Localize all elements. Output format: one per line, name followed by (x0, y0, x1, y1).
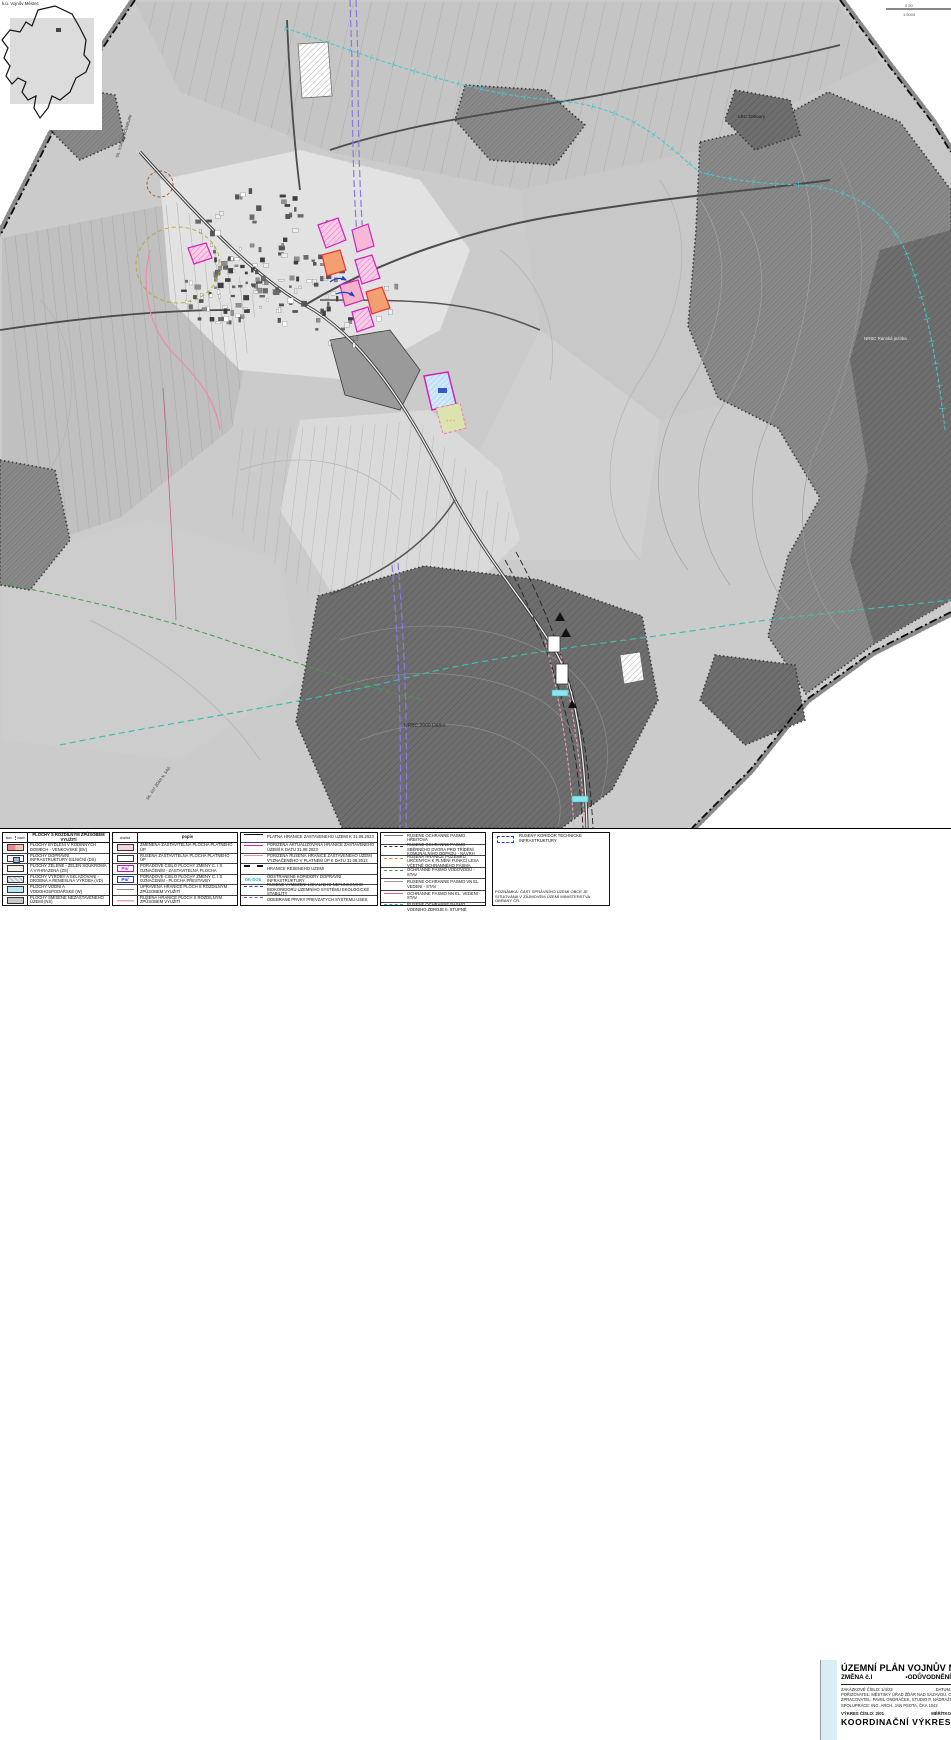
title-block-divider (841, 1684, 951, 1685)
legend-item: HRANICE ŘEŠENÉHO ÚZEMÍ (241, 864, 377, 874)
legend-item: RUŠENÉ OCHRANNÉ PÁSMO VN EL. VEDENÍ - ST… (381, 879, 485, 891)
legend-item-label: PLOCHY BYDLENÍ V RODINNÝCH DOMECH - VENK… (28, 843, 109, 852)
legend-item: PLOCHY VODNÍ A VODOHOSPODÁŘSKÉ (W) (3, 885, 109, 896)
legend-swatch: Pn/ (117, 865, 134, 872)
legend-item: OCHRANNÉ PÁSMO NN EL. VEDENÍ - STAV (381, 891, 485, 903)
inset-boundary-map (0, 0, 102, 130)
legend-subheaders: značka (113, 833, 138, 842)
legend-land-use-items: PLOCHY BYDLENÍ V RODINNÝCH DOMECH - VENK… (3, 843, 109, 905)
legend-item-label: PLOCHY VODNÍ A VODOHOSPODÁŘSKÉ (W) (28, 885, 109, 894)
legend-item-label: PLOCHY VÝROBY A SKLADOVÁNÍ - DROBNÁ A ŘE… (28, 875, 109, 884)
legend-strip: stav návrh PLOCHY S ROZDÍLNÝM ZPŮSOBEM V… (0, 830, 951, 910)
legend-swatch (7, 876, 24, 883)
legend-line-swatch (244, 865, 263, 872)
legend-item-label: RUŠENÁ HRANICE POZEMKŮ URČENÝCH K PLNĚNÍ… (405, 855, 485, 869)
legend-swatch (7, 855, 24, 862)
legend-swatch (497, 836, 514, 843)
legend-line-swatch (384, 846, 403, 853)
legend-item: Pn/ POŘADOVÉ ČÍSLO PLOCHY ZMĚNY Č. I S O… (113, 864, 237, 875)
legend-item: RUŠENÁ HRANICE PLOCH S ROZDÍLNÝM ZPŮSOBE… (113, 896, 237, 906)
legend-line-swatch (384, 835, 403, 842)
legend-table-changes: značka popis ZMĚNĚNÁ ZASTAVITELNÁ PLOCHA… (112, 832, 238, 906)
legend-item-label: ZMĚNĚNÁ ZASTAVITELNÁ PLOCHA PLATNÉHO ÚP (138, 843, 237, 852)
legend-table-land-use: stav návrh PLOCHY S ROZDÍLNÝM ZPŮSOBEM V… (2, 832, 110, 906)
legend-item: POŘÍZENÁ RUŠENÁ HRANICE ZASTAVĚNÉHO ÚZEM… (241, 854, 377, 864)
legend-item-label: RUŠENÁ ZASTAVITELNÁ PLOCHA PLATNÉHO ÚP (138, 854, 237, 863)
legend-item: OCHRANNÉ PÁSMO VODOVODU - STAV (381, 868, 485, 880)
legend-item: Pn/ POŘADOVÉ ČÍSLO PLOCHY ZMĚNY Č. I S O… (113, 875, 237, 886)
label-lbc-zahoury: LBC Zahoury (738, 114, 766, 119)
drawing-name: KOORDINAČNÍ VÝKRES ▪ (841, 1717, 951, 1727)
plan-change-label: ZMĚNA č.I (841, 1674, 872, 1681)
title-block: ÚZEMNÍ PLÁN VOJNŮV MĚSTEC ZMĚNA č.I ▪ODŮ… (820, 1660, 951, 1740)
legend-item-label: POŘÍZENÁ AKTUALIZOVANÁ HRANICE ZASTAVĚNÉ… (265, 843, 377, 852)
title-block-stripe (821, 1660, 837, 1740)
legend-boundaries-items: PLATNÁ HRANICE ZASTAVĚNÉHO ÚZEMÍ K 31.08… (241, 833, 377, 905)
legend-item-label: PLOCHY DOPRAVNÍ INFRASTRUKTURY SILNIČNÍ … (28, 854, 109, 863)
legend-swatch (7, 886, 24, 893)
legend-line-swatch (384, 881, 403, 888)
legend-line-swatch (384, 858, 403, 865)
legend-item-label: RUŠENÉ OCHRANNÉ PÁSMO VODNÍHO ZDROJE II.… (405, 903, 485, 912)
legend-swatch (7, 897, 24, 904)
legend-changes-header: popis (138, 833, 237, 842)
legend-item-label: POŘADOVÉ ČÍSLO PLOCHY ZMĚNY Č. I S OZNAČ… (138, 875, 237, 884)
legend-item-label: UPRAVENÁ HRANICE PLOCH S ROZDÍLNÝM ZPŮSO… (138, 885, 237, 894)
legend-changes-items: ZMĚNĚNÁ ZASTAVITELNÁ PLOCHA PLATNÉHO ÚP … (113, 843, 237, 905)
legend-note: POZNÁMKA: ČÁST SPRÁVNÍHO ÚZEMÍ OBCE JE S… (495, 890, 607, 904)
legend-line-swatch: DK-DO5 (244, 876, 263, 883)
legend-item-label: PLOCHY SMÍŠENÉ NEZASTAVĚNÉHO ÚZEMÍ (NS) (28, 896, 109, 905)
scale-label: MĚŘÍTKO (931, 1711, 951, 1716)
legend-line-swatch (384, 904, 403, 911)
legend-item: PLOCHY ZELENĚ - ZELEŇ SOUKROMÁ A VYHRAZE… (3, 864, 109, 875)
legend-swatch (117, 886, 134, 893)
legend-item-label: POŘÍZENÁ RUŠENÁ HRANICE ZASTAVĚNÉHO ÚZEM… (265, 854, 377, 863)
legend-line-swatch (244, 897, 263, 904)
legend-item-label: RUŠENÉ OCHRANNÉ PÁSMO VN EL. VEDENÍ - ST… (405, 880, 485, 889)
legend-swatch (7, 865, 24, 872)
legend-item: RUŠENÉ VYMEZENÍ LOKÁLNÍHO NEFUNKČNÍHO BI… (241, 885, 377, 895)
legend-item: PLOCHY BYDLENÍ V RODINNÝCH DOMECH - VENK… (3, 843, 109, 854)
legend-item-label: ODEBRANÉ PRVKY PŘEVZATÝCH SYSTÉMŮ ÚSES (265, 898, 377, 903)
legend-item-label: HRANICE ŘEŠENÉHO ÚZEMÍ (265, 867, 377, 872)
legend-item-label: OCHRANNÉ PÁSMO VODOVODU - STAV (405, 868, 485, 877)
inset-caption: k.ú. Vojnův Městec (2, 1, 39, 6)
svg-text:+ + +: + + + (446, 418, 456, 423)
label-ranska-jezirka: NRBC Ranská jezírka (864, 336, 907, 341)
legend-item: RUŠENÁ ZASTAVITELNÁ PLOCHA PLATNÉHO ÚP (113, 854, 237, 865)
legend-swatch: Pn/ (117, 876, 134, 883)
label-nrbc-darko: NRBC 2009 Dářko (404, 723, 446, 729)
legend-table-protection: RUŠENÉ OCHRANNÉ PÁSMO HŘBITOVA RUŠENÉ OC… (380, 832, 486, 906)
scale-mark: 0 50 1:5000 (884, 0, 951, 20)
legend-protection-items: RUŠENÉ OCHRANNÉ PÁSMO HŘBITOVA RUŠENÉ OC… (381, 833, 485, 913)
legend-item: PLOCHY SMÍŠENÉ NEZASTAVĚNÉHO ÚZEMÍ (NS) (3, 896, 109, 906)
legend-table-corridors: RUŠENÝ KORIDOR TECHNICKÉ INFRASTRUKTURY … (492, 832, 610, 906)
legend-item-label: RUŠENÝ KORIDOR TECHNICKÉ INFRASTRUKTURY (517, 834, 609, 843)
inset-town-marker (56, 28, 61, 32)
svg-text:0 50: 0 50 (905, 3, 914, 8)
plan-title: ÚZEMNÍ PLÁN VOJNŮV MĚSTEC (841, 1663, 951, 1673)
legend-item: UPRAVENÁ HRANICE PLOCH S ROZDÍLNÝM ZPŮSO… (113, 885, 237, 896)
legend-item-label: RUŠENÉ OCHRANNÉ PÁSMO HŘBITOVA (405, 834, 485, 843)
legend-item: RUŠENÁ HRANICE POZEMKŮ URČENÝCH K PLNĚNÍ… (381, 856, 485, 868)
legend-item: RUŠENÉ OCHRANNÉ PÁSMO VODNÍHO ZDROJE II.… (381, 903, 485, 914)
legend-line-swatch (244, 834, 263, 841)
legend-item: PLATNÁ HRANICE ZASTAVĚNÉHO ÚZEMÍ K 31.08… (241, 833, 377, 843)
legend-item: POŘÍZENÁ AKTUALIZOVANÁ HRANICE ZASTAVĚNÉ… (241, 843, 377, 853)
legend-item: PLOCHY VÝROBY A SKLADOVÁNÍ - DROBNÁ A ŘE… (3, 875, 109, 886)
cooperation-line: SPOLUPRÁCE: ING. ARCH. JAN PSOTA, ČKA 10… (841, 1703, 951, 1708)
coordination-drawing-map[interactable]: + + + LBC Zahoury NRBC 2009 Dářko NRBC R… (0, 0, 951, 828)
legend-land-use-header: PLOCHY S ROZDÍLNÝM ZPŮSOBEM VYUŽITÍ (28, 833, 109, 842)
legend-subheaders: stav návrh (3, 833, 28, 842)
map-canvas: + + + LBC Zahoury NRBC 2009 Dářko NRBC R… (0, 0, 951, 828)
legend-item-label: PLATNÁ HRANICE ZASTAVĚNÉHO ÚZEMÍ K 31.08… (265, 835, 377, 840)
legend-swatch (117, 844, 134, 851)
drawing-number: VÝKRES ČÍSLO: 2/01 (841, 1711, 884, 1716)
legend-line-swatch (244, 845, 263, 852)
legend-swatch (117, 855, 134, 862)
map-legend-divider (0, 828, 951, 829)
legend-corridors-items: RUŠENÝ KORIDOR TECHNICKÉ INFRASTRUKTURY (493, 833, 609, 845)
legend-line-swatch (384, 870, 403, 877)
legend-item: RUŠENÝ KORIDOR TECHNICKÉ INFRASTRUKTURY (493, 833, 609, 845)
legend-line-swatch (384, 893, 403, 900)
legend-table-boundaries: PLATNÁ HRANICE ZASTAVĚNÉHO ÚZEMÍ K 31.08… (240, 832, 378, 906)
legend-line-swatch (244, 886, 263, 893)
legend-item-label: RUŠENÁ HRANICE PLOCH S ROZDÍLNÝM ZPŮSOBE… (138, 896, 237, 905)
legend-line-swatch (244, 855, 263, 862)
legend-item-label: POŘADOVÉ ČÍSLO PLOCHY ZMĚNY Č. I S OZNAČ… (138, 864, 237, 873)
legend-item: ODEBRANÉ PRVKY PŘEVZATÝCH SYSTÉMŮ ÚSES (241, 896, 377, 905)
legend-item: PLOCHY DOPRAVNÍ INFRASTRUKTURY SILNIČNÍ … (3, 854, 109, 865)
legend-item-label: PLOCHY ZELENĚ - ZELEŇ SOUKROMÁ A VYHRAZE… (28, 864, 109, 873)
legend-swatch (7, 844, 24, 851)
legend-item: ZMĚNĚNÁ ZASTAVITELNÁ PLOCHA PLATNÉHO ÚP (113, 843, 237, 854)
plan-part-label: ▪ODŮVODNĚNÍ (905, 1674, 951, 1681)
legend-item-label: OCHRANNÉ PÁSMO NN EL. VEDENÍ - STAV (405, 892, 485, 901)
author-line: ZPRACOVATEL: PAVEL ONDRÁČEK, STUDIO P, N… (841, 1697, 951, 1702)
svg-text:1:5000: 1:5000 (903, 12, 916, 17)
overview-inset-map: k.ú. Vojnův Městec (0, 0, 102, 130)
legend-swatch (117, 897, 134, 904)
